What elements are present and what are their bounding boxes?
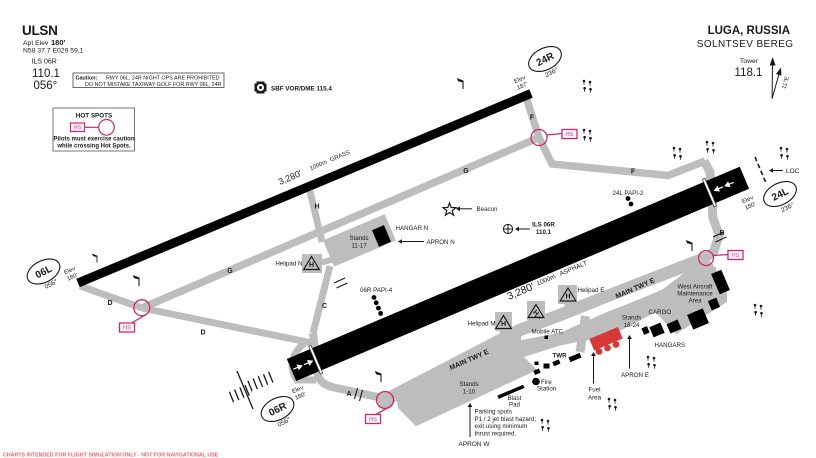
svg-text:CHARTS INTENDED FOR FLIGHT SIM: CHARTS INTENDED FOR FLIGHT SIMULATION ON… — [3, 453, 219, 458]
svg-text:180': 180' — [51, 38, 66, 47]
svg-text:Helipad E: Helipad E — [578, 287, 605, 294]
svg-text:Caution:: Caution: — [76, 76, 98, 82]
svg-text:Station: Station — [537, 386, 557, 393]
svg-text:TWR: TWR — [553, 353, 568, 360]
svg-text:H: H — [565, 294, 570, 301]
svg-text:ILS 06R: ILS 06R — [532, 222, 555, 229]
svg-text:APRON W: APRON W — [459, 441, 491, 448]
svg-text:LOC: LOC — [786, 168, 800, 175]
svg-text:Pilots must exercise caution: Pilots must exercise caution — [53, 137, 134, 143]
svg-text:Helipad M: Helipad M — [468, 321, 496, 328]
svg-text:HOT SPOTS: HOT SPOTS — [76, 113, 112, 120]
svg-text:SOLNTSEV BEREG: SOLNTSEV BEREG — [697, 39, 794, 50]
svg-text:Area: Area — [588, 395, 602, 402]
svg-text:exit using minimum: exit using minimum — [475, 423, 528, 430]
svg-text:D: D — [107, 300, 112, 307]
svg-text:HS: HS — [73, 126, 81, 132]
svg-text:thrust required.: thrust required. — [475, 430, 517, 437]
svg-text:P1 / 2 jet blast hazard;: P1 / 2 jet blast hazard; — [475, 416, 537, 423]
svg-text:DO NOT MISTAKE TAXIWAY GOLF FO: DO NOT MISTAKE TAXIWAY GOLF FOR RWY 06L,… — [85, 82, 222, 88]
svg-text:B: B — [719, 230, 724, 237]
svg-text:06R PAPI-4: 06R PAPI-4 — [360, 287, 393, 294]
svg-text:Stands: Stands — [622, 315, 641, 322]
svg-text:Area: Area — [688, 298, 702, 305]
svg-text:Pad: Pad — [509, 402, 521, 409]
svg-text:RWY 06L, 24R NIGHT OPS ARE PRO: RWY 06L, 24R NIGHT OPS ARE PROHIBITED — [106, 76, 220, 82]
svg-text:A: A — [346, 391, 351, 398]
svg-text:while crossing Hot Spots.: while crossing Hot Spots. — [56, 144, 131, 150]
svg-text:HS: HS — [123, 326, 131, 332]
svg-text:056°: 056° — [34, 80, 58, 92]
svg-text:C: C — [322, 303, 327, 310]
svg-text:APRON E: APRON E — [621, 372, 649, 379]
svg-text:Beacon: Beacon — [477, 206, 499, 213]
svg-text:LUGA, RUSSIA: LUGA, RUSSIA — [708, 25, 790, 37]
svg-text:Fuel: Fuel — [588, 387, 600, 394]
svg-text:11-17: 11-17 — [351, 243, 367, 250]
svg-text:Parking spots: Parking spots — [475, 409, 513, 416]
svg-text:Stands: Stands — [349, 235, 368, 242]
svg-text:West Aircraft: West Aircraft — [678, 284, 713, 291]
svg-text:HS: HS — [731, 253, 739, 259]
svg-text:HANGARS: HANGARS — [655, 342, 686, 349]
svg-text:SBF VOR/DME 115.4: SBF VOR/DME 115.4 — [271, 86, 332, 93]
svg-text:APRON N: APRON N — [427, 239, 455, 246]
svg-text:N58 37.7 E029 59.1: N58 37.7 E029 59.1 — [23, 48, 84, 55]
svg-text:Tower: Tower — [740, 58, 759, 65]
svg-text:Apt Elev: Apt Elev — [23, 40, 49, 47]
svg-text:G: G — [463, 168, 469, 175]
svg-text:118.1: 118.1 — [735, 67, 763, 79]
svg-text:HS: HS — [369, 417, 377, 423]
svg-text:110.1: 110.1 — [536, 229, 552, 236]
svg-text:GRASS: GRASS — [329, 150, 351, 164]
svg-text:1-10: 1-10 — [463, 389, 476, 396]
svg-text:110.1: 110.1 — [32, 68, 60, 80]
svg-text:Helipad N: Helipad N — [275, 261, 302, 268]
svg-text:ILS 06R: ILS 06R — [32, 59, 57, 66]
svg-text:HANGAR N: HANGAR N — [396, 225, 429, 232]
svg-text:HS: HS — [565, 132, 573, 138]
svg-text:Maintenance: Maintenance — [677, 291, 713, 298]
svg-text:F: F — [631, 169, 636, 176]
svg-text:11°E: 11°E — [782, 76, 791, 90]
svg-text:18-24: 18-24 — [624, 322, 640, 329]
svg-text:H: H — [501, 321, 506, 328]
svg-text:ULSN: ULSN — [22, 23, 58, 38]
svg-text:H: H — [314, 204, 319, 211]
svg-text:CARGO: CARGO — [649, 309, 672, 316]
svg-text:1000m: 1000m — [309, 159, 328, 172]
svg-text:G: G — [227, 268, 233, 275]
svg-text:Mobile ATC: Mobile ATC — [532, 329, 564, 336]
svg-text:24L PAPI-2: 24L PAPI-2 — [613, 190, 645, 197]
svg-text:Stands: Stands — [459, 381, 478, 388]
svg-text:F: F — [530, 115, 535, 122]
svg-text:H: H — [309, 262, 314, 269]
svg-text:D: D — [200, 330, 205, 337]
svg-text:3,280': 3,280' — [277, 168, 303, 187]
